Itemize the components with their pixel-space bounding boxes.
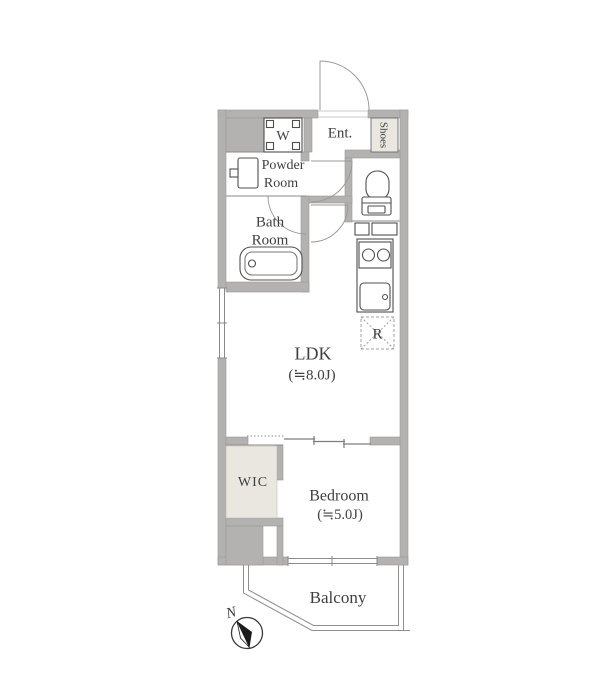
- bedroom-size-label: (≒5.0J): [317, 507, 363, 523]
- toilet-seat-detail: [368, 206, 385, 213]
- powder-room-label-line2: Room: [264, 176, 298, 191]
- shoes-label: Shoes: [378, 122, 390, 148]
- storage-box-small: [355, 223, 369, 235]
- wic-label: WIC: [238, 475, 268, 490]
- refrigerator-label: R: [372, 326, 382, 342]
- wall-bath-right: [301, 196, 309, 292]
- entrance-label: Ent.: [328, 125, 353, 141]
- wall-laundry-ent-divider: [304, 118, 312, 152]
- powder-room-label-line1: Powder: [262, 158, 305, 173]
- bath-room-label-line1: Bath: [256, 214, 285, 230]
- bath-room-label-line2: Room: [252, 232, 289, 248]
- wall-wic-bottom: [226, 518, 283, 526]
- bathtub-drain: [249, 260, 256, 267]
- washbasin-bowl: [238, 158, 258, 188]
- bathtub: [240, 247, 302, 280]
- washer-pan-corner-br: [293, 143, 300, 150]
- wall-left-lower: [218, 358, 226, 565]
- bedroom-label: Bedroom: [309, 488, 369, 505]
- window-left: [217, 288, 227, 358]
- floor-plan: Ent. Shoes W Powder Room Bath Room LDK (…: [0, 0, 614, 679]
- stove-burner-left: [363, 249, 375, 261]
- wall-bottom-right: [377, 557, 408, 565]
- ldk-door: [311, 205, 348, 242]
- wall-bath-bottom: [226, 282, 309, 292]
- ldk-size-label: (≒8.0J): [288, 367, 335, 383]
- compass: [232, 618, 263, 649]
- stove-burner-right: [378, 249, 390, 261]
- storage-box-large: [372, 223, 397, 235]
- wall-right: [400, 110, 408, 565]
- washer-pan-corner-tr: [293, 121, 300, 128]
- wall-ldk-divider-left-stub: [226, 437, 248, 445]
- ldk-door-arc: [311, 205, 348, 242]
- wall-pipe-space-block: [226, 526, 263, 565]
- wall-bedroom-corner-strip: [277, 526, 283, 565]
- stove: [359, 242, 391, 268]
- balcony-label: Balcony: [310, 588, 367, 607]
- wall-top-left: [218, 110, 318, 118]
- window-bedroom-south: [288, 556, 377, 566]
- toilet: [362, 171, 391, 215]
- washer-pan-corner-bl: [267, 143, 274, 150]
- wall-wic-right: [277, 445, 283, 480]
- washbasin: [230, 158, 258, 188]
- wall-ldk-divider-right-stub: [370, 437, 400, 445]
- wall-left-upper: [218, 110, 226, 288]
- entrance-door: [320, 61, 369, 110]
- wall-corner-block: [226, 118, 264, 152]
- entrance-door-arc: [320, 61, 369, 110]
- washbasin-faucet: [230, 169, 238, 177]
- kitchen-counter: [357, 239, 393, 312]
- bedroom-sliding-door: [284, 436, 371, 448]
- kitchen-sink: [360, 283, 390, 310]
- sink-faucet: [383, 295, 388, 300]
- washer-label: W: [276, 129, 290, 144]
- washer-pan-corner-tl: [267, 121, 274, 128]
- ldk-label: LDK: [295, 343, 332, 363]
- wall-toilet-left: [345, 158, 352, 222]
- floor-plan-page: Ent. Shoes W Powder Room Bath Room LDK (…: [0, 0, 614, 679]
- compass-north-label: N: [223, 604, 239, 623]
- entrance-threshold: [318, 111, 368, 117]
- toilet-bowl: [366, 171, 389, 200]
